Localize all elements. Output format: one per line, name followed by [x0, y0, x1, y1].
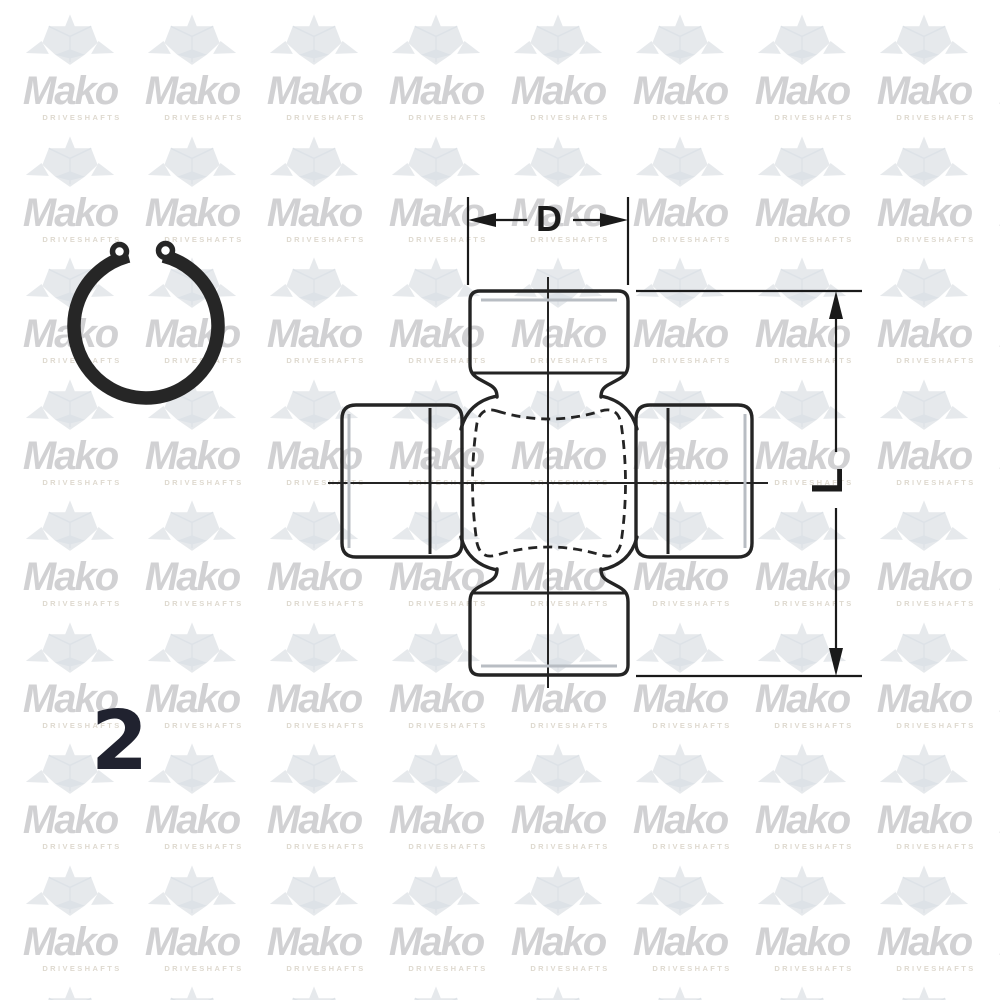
- snap-ring-body: [74, 256, 218, 398]
- snap-ring-eyelet-right: [159, 244, 173, 258]
- technical-diagram: D L 2: [0, 0, 1000, 1000]
- snap-ring-eyelet-left: [113, 245, 127, 259]
- dimension-D: D: [468, 197, 628, 285]
- fillet-top-right: [601, 396, 637, 429]
- fillet-top-left: [461, 396, 497, 429]
- fillet-bottom-right: [601, 537, 637, 570]
- dim-D-arrow-left: [468, 213, 496, 227]
- dim-L-arrow-top: [829, 291, 843, 319]
- right-cup-outline: [636, 405, 752, 557]
- snap-ring-drawing: [74, 244, 218, 398]
- catalog-figure-page: { "watermark": { "brand": "Mako", "subti…: [0, 0, 1000, 1000]
- fillet-bottom-left: [461, 537, 497, 570]
- dim-L-label: L: [803, 468, 852, 495]
- left-cup-outline: [342, 405, 462, 557]
- dim-D-arrow-right: [600, 213, 628, 227]
- item-number: 2: [91, 694, 148, 789]
- ujoint-cross-drawing: [328, 277, 768, 688]
- dim-D-label: D: [536, 198, 562, 239]
- dim-L-arrow-bottom: [829, 648, 843, 676]
